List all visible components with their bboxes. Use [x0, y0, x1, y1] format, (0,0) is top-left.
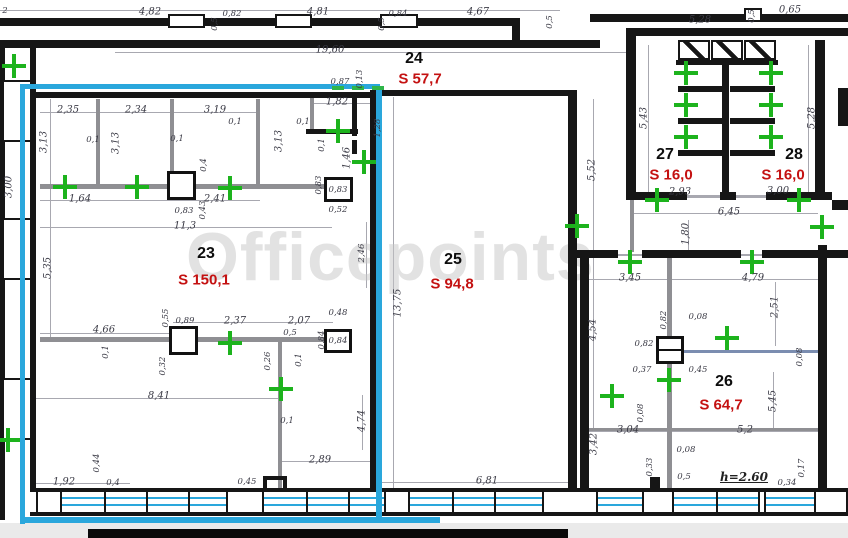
window-mullion [494, 492, 496, 512]
dimension-label: 0,08 [636, 404, 646, 423]
wall [642, 250, 741, 258]
dimension-label: 0,84 [389, 9, 408, 19]
dimension-label: 6,81 [476, 476, 498, 487]
highlight-dash [372, 86, 384, 90]
dimension-line [736, 196, 766, 198]
dimension-label: 2,37 [224, 316, 246, 327]
room-23-highlight-outline [376, 88, 382, 520]
green-cross-marker [674, 125, 698, 149]
wall [568, 92, 577, 490]
dimension-label: 1,28 [373, 119, 383, 138]
window-pier [542, 490, 598, 514]
dimension-label: 0,82 [223, 9, 242, 19]
wall [762, 250, 848, 258]
green-cross-marker [740, 250, 764, 274]
dimension-label: 0,65 [779, 5, 801, 16]
green-cross-marker [657, 368, 681, 392]
wall [0, 18, 168, 26]
stall-partition-wall [730, 118, 775, 124]
dimension-label: 4,66 [93, 325, 115, 336]
dimension-label: 5,28 [689, 15, 711, 26]
dimension-label: 0,1 [101, 345, 111, 359]
wall [512, 18, 520, 44]
dimension-label: 0,1 [170, 134, 184, 144]
dimension-label: 5,45 [768, 390, 779, 412]
wall [832, 200, 848, 210]
column [169, 326, 198, 355]
dimension-label: 0,1 [296, 117, 310, 127]
dimension-label: 5,43 [639, 107, 650, 129]
room-area-label: S 64,7 [699, 397, 742, 414]
dimension-label: 2 [2, 6, 7, 16]
window-pier [384, 490, 410, 514]
window-glazing [62, 497, 226, 499]
window-pier [642, 490, 674, 514]
dimension-line [115, 52, 628, 53]
dimension-label: 0,1 [280, 416, 294, 426]
dimension-label: 0,08 [795, 348, 805, 367]
window-pier [36, 490, 62, 514]
dimension-label: 0,1 [317, 138, 327, 152]
wall [0, 40, 600, 48]
window-mullion [348, 492, 350, 512]
green-cross-bar [228, 176, 232, 200]
dimension-label: 4,74 [357, 410, 368, 432]
dimension-label: 2,07 [288, 316, 310, 327]
green-cross-bar [6, 428, 10, 452]
green-cross-marker [269, 377, 293, 401]
dimension-label: 19,60 [316, 45, 345, 56]
dimension-label: 5,28 [807, 107, 818, 129]
dimension-label: 3,00 [767, 186, 789, 197]
floor-plan-canvas: Officepoints 24,820,824,810,844,670,50,5… [0, 0, 848, 538]
dimension-label: 0,5 [377, 17, 387, 31]
green-cross-marker [674, 93, 698, 117]
green-cross-marker [787, 188, 811, 212]
window-mullion [188, 492, 190, 512]
dimension-label: 5,2 [737, 425, 753, 436]
room-area-label: S 16,0 [761, 167, 804, 184]
stall-partition-wall [678, 86, 723, 92]
green-cross-marker [352, 150, 376, 174]
window-pier [758, 490, 766, 514]
dimension-label: 1,92 [53, 477, 75, 488]
dimension-label: 0,34 [778, 478, 797, 488]
window-glazing [264, 497, 384, 499]
window-mullion [146, 492, 148, 512]
green-cross-marker [565, 214, 589, 238]
window-glazing [62, 504, 226, 506]
dimension-label: 1,82 [326, 97, 348, 108]
dimension-label: 0,08 [689, 312, 708, 322]
dimension-label: 2,89 [309, 455, 331, 466]
dimension-label: 0,83 [175, 206, 194, 216]
green-cross-bar [667, 368, 671, 392]
dimension-label: 0,5 [747, 9, 757, 23]
dimension-label: 0,1 [294, 353, 304, 367]
dimension-line [50, 99, 51, 337]
stall-partition-wall [730, 86, 775, 92]
dimension-line [380, 482, 568, 483]
stall-partition-wall [678, 150, 723, 156]
dimension-label: 2,35 [57, 105, 79, 116]
room-number-label: 23 [197, 245, 215, 263]
dimension-label: 0,52 [329, 205, 348, 215]
dimension-label: 5,52 [587, 159, 598, 181]
column [656, 336, 684, 364]
window-glazing [264, 504, 384, 506]
dimension-label: 3,13 [39, 131, 50, 153]
green-cross-bar [63, 175, 67, 199]
dimension-label: 0,83 [314, 176, 324, 195]
dimension-label: 8,41 [148, 391, 170, 402]
wall [312, 18, 380, 26]
wall [632, 28, 848, 36]
dimension-label: 0,5 [283, 328, 297, 338]
dimension-label: 0,17 [797, 459, 807, 478]
green-cross-bar [336, 119, 340, 143]
green-cross-bar [769, 61, 773, 85]
partition-wall [630, 200, 634, 252]
dimension-label: 0,1 [86, 135, 100, 145]
dimension-label: 0,5 [545, 15, 555, 29]
wall [418, 18, 518, 26]
shaft-hatch [678, 40, 710, 60]
room-23-highlight-outline [20, 84, 380, 89]
green-cross-marker [0, 428, 20, 452]
wall [370, 90, 577, 96]
wall-opening-window [2, 218, 32, 280]
room-number-label: 24 [405, 50, 423, 68]
room-area-label: S 94,8 [430, 276, 473, 293]
dimension-label: 0,55 [161, 309, 171, 328]
wall [30, 512, 848, 516]
dimension-label: 0,45 [238, 477, 257, 487]
wall-opening-window [168, 14, 205, 28]
dimension-label: 0,13 [355, 70, 365, 89]
wall-opening-window [2, 80, 32, 142]
dimension-label: 5,35 [43, 257, 54, 279]
green-cross-bar [797, 188, 801, 212]
green-cross-marker [600, 384, 624, 408]
dimension-label: 0,08 [677, 445, 696, 455]
green-cross-bar [575, 214, 579, 238]
dimension-label: 0,32 [158, 357, 168, 376]
green-cross-marker [2, 54, 26, 78]
room-number-label: 25 [444, 251, 462, 269]
dimension-label: 4,54 [588, 319, 599, 341]
partition-wall [256, 99, 260, 185]
window-mullion [306, 492, 308, 512]
wall [722, 60, 729, 194]
room-area-label: S 150,1 [178, 272, 230, 289]
dimension-label: 1,80 [681, 223, 692, 245]
green-cross-bar [684, 61, 688, 85]
green-cross-marker [645, 188, 669, 212]
window-glazing [766, 504, 814, 506]
green-cross-bar [228, 331, 232, 355]
green-cross-marker [326, 119, 350, 143]
green-cross-bar [684, 93, 688, 117]
dimension-label: 2,46 [357, 244, 367, 263]
green-cross-marker [759, 61, 783, 85]
partition-wall [278, 342, 282, 488]
room-area-label: S 16,0 [649, 167, 692, 184]
green-cross-bar [0, 438, 20, 442]
wall [590, 14, 744, 22]
wall [626, 28, 636, 200]
green-cross-bar [769, 93, 773, 117]
green-cross-bar [279, 377, 283, 401]
window-glazing [410, 497, 542, 499]
wall [818, 245, 827, 492]
dimension-label: 0,44 [92, 454, 102, 473]
room-number-label: 27 [656, 146, 674, 164]
green-cross-marker [810, 215, 834, 239]
dimension-label: 0,1 [228, 117, 242, 127]
dimension-label: 2,51 [770, 296, 781, 318]
window-pier [226, 490, 264, 514]
dimension-label: 1,64 [69, 194, 91, 205]
green-cross-marker [218, 331, 242, 355]
dimension-label: 1,46 [342, 147, 353, 169]
dimension-label: 6,45 [718, 207, 740, 218]
dimension-label: 0,84 [329, 336, 348, 346]
green-cross-marker [125, 175, 149, 199]
dimension-label: 4,67 [467, 7, 489, 18]
window-glazing [410, 504, 542, 506]
dimension-label: 0,45 [689, 365, 708, 375]
stall-partition-wall [678, 118, 723, 124]
green-cross-bar [750, 250, 754, 274]
column [167, 171, 196, 200]
wall [36, 488, 848, 492]
green-cross-bar [135, 175, 139, 199]
dimension-label: 0,87 [331, 77, 350, 87]
dimension-label: 3,13 [274, 130, 285, 152]
green-cross-marker [715, 326, 739, 350]
green-cross-marker [759, 125, 783, 149]
stall-partition-wall [730, 150, 775, 156]
dimension-label: 4,81 [307, 7, 329, 18]
window-mullion [104, 492, 106, 512]
window-mullion [716, 492, 718, 512]
room-number-label: 26 [715, 373, 733, 391]
green-cross-bar [628, 250, 632, 274]
dimension-label: 11,3 [174, 221, 196, 232]
dimension-label: 4,79 [742, 273, 764, 284]
dimension-label: 0,82 [635, 339, 654, 349]
shaft-hatch [744, 40, 776, 60]
dimension-line [687, 196, 720, 198]
dimension-label: 0,48 [329, 308, 348, 318]
adjacent-drawing-edge [88, 529, 568, 538]
green-cross-marker [674, 61, 698, 85]
wall [760, 14, 848, 22]
green-cross-bar [725, 326, 729, 350]
room-23-highlight-outline [20, 517, 440, 523]
green-cross-bar [12, 54, 16, 78]
dimension-label: 4,82 [139, 7, 161, 18]
wall [720, 192, 736, 200]
window-mullion [452, 492, 454, 512]
dimension-label: 0,5 [677, 472, 691, 482]
dimension-label: 0,83 [329, 185, 348, 195]
room-number-label: 28 [785, 146, 803, 164]
dimension-label: 0,4 [106, 478, 120, 488]
green-cross-bar [820, 215, 824, 239]
wall [352, 96, 357, 136]
wall [580, 256, 589, 492]
dimension-label: 0,4 [199, 158, 209, 172]
green-cross-marker [759, 93, 783, 117]
dimension-label: 3,19 [204, 105, 226, 116]
dimension-label: 3,00 [4, 176, 15, 198]
green-cross-bar [655, 188, 659, 212]
dimension-label: h=2.60 [720, 470, 768, 484]
green-cross-bar [769, 125, 773, 149]
window-glazing [598, 497, 642, 499]
room-23-highlight-outline [20, 84, 25, 524]
dimension-label: 0,5 [210, 17, 220, 31]
dimension-label: 2,93 [669, 187, 691, 198]
column-midline [659, 349, 681, 351]
window-glazing [766, 497, 814, 499]
dimension-label: 3,04 [617, 425, 639, 436]
dimension-label: 2,34 [125, 105, 147, 116]
dimension-label: 3,13 [111, 132, 122, 154]
dimension-label: 0,33 [645, 458, 655, 477]
green-cross-bar [684, 125, 688, 149]
green-cross-marker [618, 250, 642, 274]
dimension-label: 3,42 [589, 433, 600, 455]
window-glazing [598, 504, 642, 506]
dimension-label: 0,89 [176, 316, 195, 326]
dimension-label: 0,26 [263, 352, 273, 371]
dimension-label: 0,43 [198, 201, 208, 220]
dimension-label: 13,75 [393, 289, 404, 318]
green-cross-bar [362, 150, 366, 174]
shaft-hatch [711, 40, 743, 60]
dimension-label: 3,45 [619, 273, 641, 284]
dimension-label: 0,37 [633, 365, 652, 375]
room-area-label: S 57,7 [398, 71, 441, 88]
window-pier [814, 490, 848, 514]
green-cross-bar [610, 384, 614, 408]
dimension-label: 0,84 [317, 331, 327, 350]
wall [838, 88, 848, 126]
watermark: Officepoints [186, 218, 595, 296]
partition-wall [310, 95, 314, 131]
dimension-label: 0,82 [659, 311, 669, 330]
